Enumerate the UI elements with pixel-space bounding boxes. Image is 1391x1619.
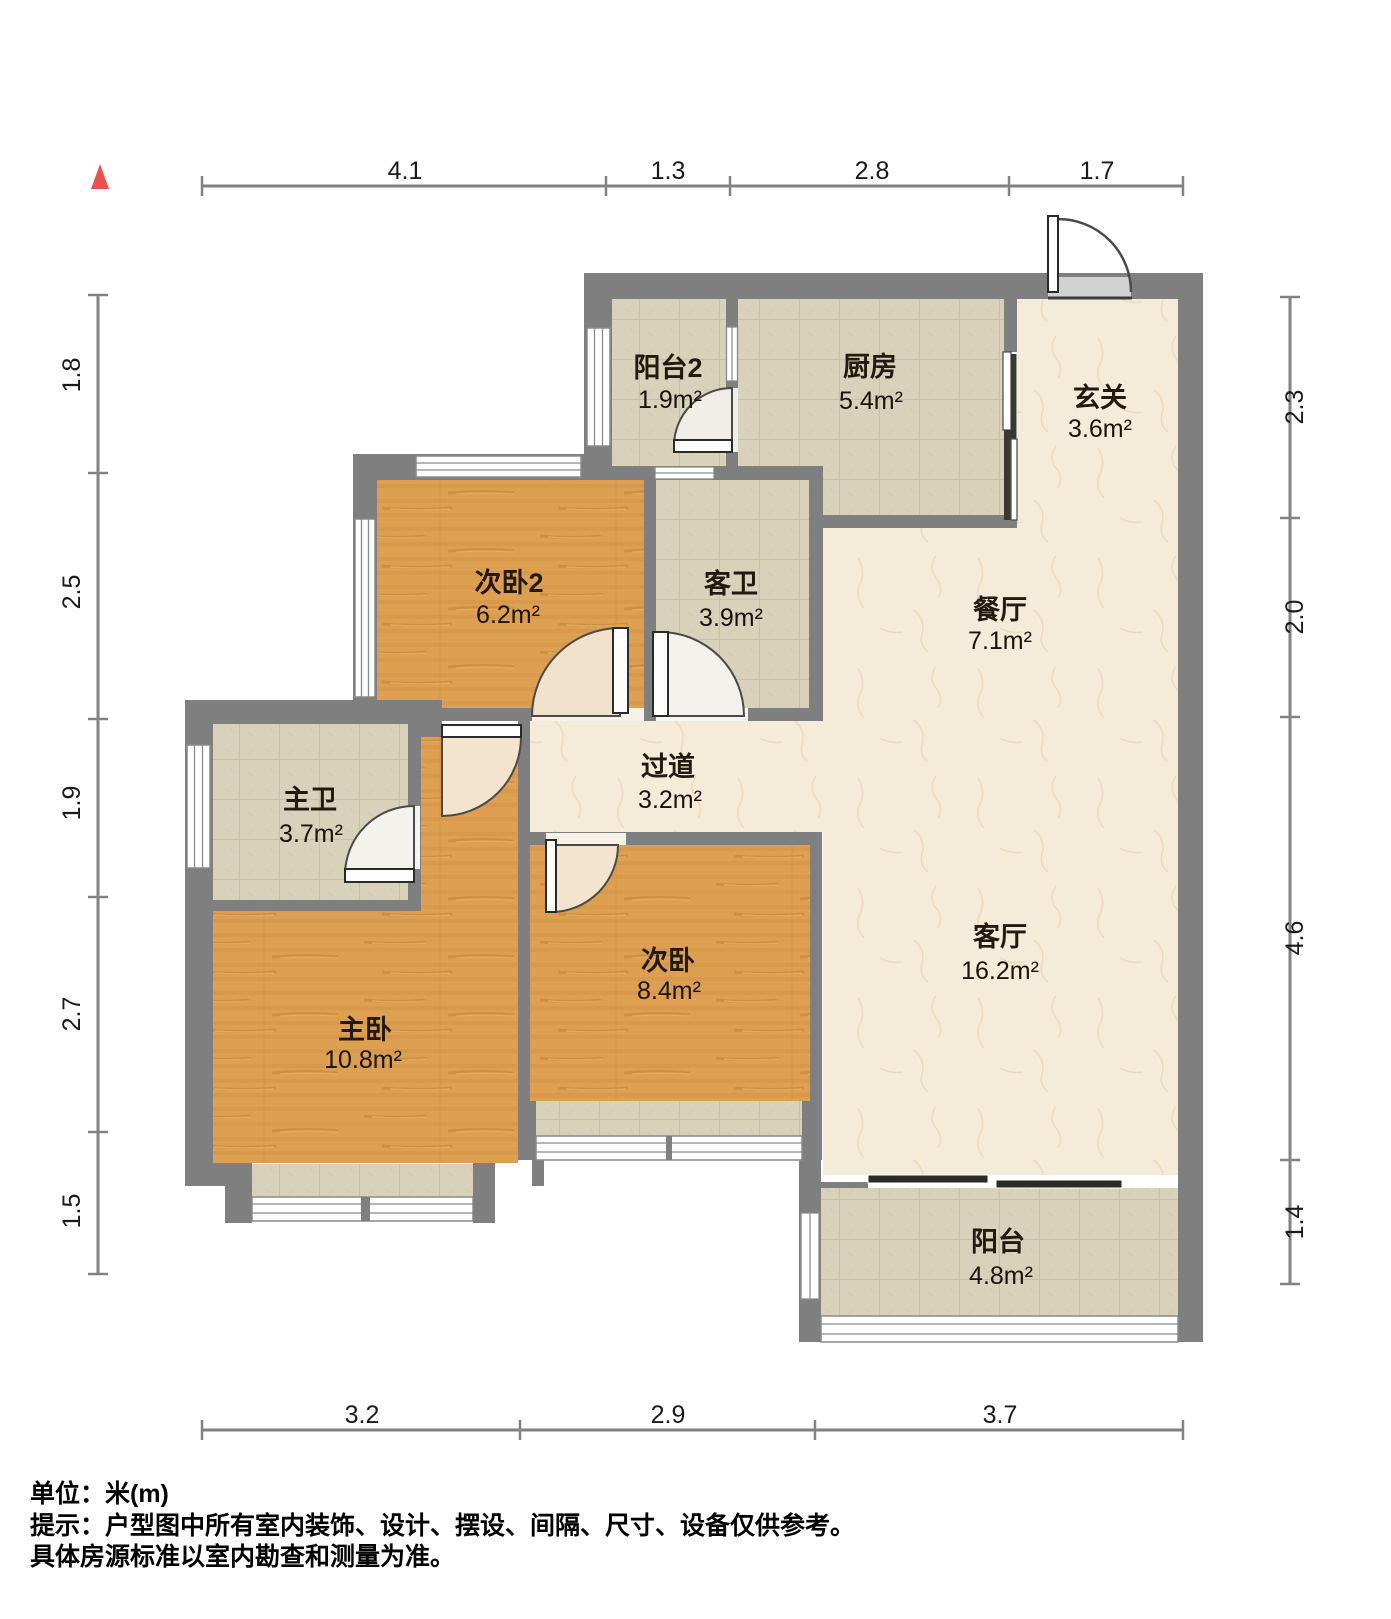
svg-text:厨房: 厨房 (843, 352, 897, 382)
svg-text:1.9m²: 1.9m² (638, 386, 702, 414)
svg-text:2.0: 2.0 (1281, 600, 1309, 635)
svg-text:主卫: 主卫 (283, 785, 337, 815)
svg-text:阳台: 阳台 (971, 1226, 1025, 1257)
svg-text:5.4m²: 5.4m² (839, 387, 903, 415)
svg-text:提示：户型图中所有室内装饰、设计、摆设、间隔、尺寸、设备仅供: 提示：户型图中所有室内装饰、设计、摆设、间隔、尺寸、设备仅供参考。 (30, 1511, 855, 1540)
svg-text:1.8: 1.8 (58, 358, 86, 393)
svg-text:2.9: 2.9 (651, 1401, 686, 1429)
svg-text:单位：米(m): 单位：米(m) (30, 1479, 169, 1508)
svg-text:16.2m²: 16.2m² (961, 957, 1039, 985)
svg-text:客厅: 客厅 (973, 921, 1027, 952)
svg-text:阳台2: 阳台2 (633, 352, 702, 383)
svg-text:1.9: 1.9 (58, 786, 86, 821)
svg-text:8.4m²: 8.4m² (637, 977, 701, 1005)
svg-text:3.7: 3.7 (983, 1401, 1018, 1429)
svg-text:过道: 过道 (641, 751, 695, 782)
svg-text:1.3: 1.3 (651, 157, 686, 185)
svg-text:主卧: 主卧 (338, 1015, 392, 1045)
svg-text:次卧2: 次卧2 (474, 568, 543, 598)
svg-text:7.1m²: 7.1m² (968, 627, 1032, 655)
svg-text:3.2: 3.2 (345, 1401, 380, 1429)
svg-text:具体房源标准以室内勘查和测量为准。: 具体房源标准以室内勘查和测量为准。 (30, 1542, 455, 1571)
svg-text:10.8m²: 10.8m² (324, 1046, 402, 1074)
svg-text:2.3: 2.3 (1281, 390, 1309, 425)
svg-text:客卫: 客卫 (704, 568, 758, 599)
svg-text:3.9m²: 3.9m² (699, 604, 763, 632)
svg-text:餐厅: 餐厅 (973, 595, 1027, 625)
svg-text:4.8m²: 4.8m² (969, 1262, 1033, 1290)
svg-text:3.6m²: 3.6m² (1068, 415, 1132, 443)
svg-text:1.4: 1.4 (1281, 1205, 1309, 1240)
svg-text:玄关: 玄关 (1073, 382, 1127, 413)
svg-text:4.1: 4.1 (388, 157, 423, 185)
svg-text:1.5: 1.5 (58, 1194, 86, 1229)
svg-text:3.7m²: 3.7m² (279, 820, 343, 848)
svg-text:次卧: 次卧 (641, 946, 695, 976)
svg-text:3.2m²: 3.2m² (638, 786, 702, 814)
svg-text:6.2m²: 6.2m² (476, 601, 540, 629)
svg-text:4.6: 4.6 (1281, 921, 1309, 956)
svg-text:2.5: 2.5 (58, 575, 86, 610)
svg-text:2.8: 2.8 (855, 157, 890, 185)
svg-text:2.7: 2.7 (58, 997, 86, 1032)
svg-text:1.7: 1.7 (1080, 157, 1115, 185)
